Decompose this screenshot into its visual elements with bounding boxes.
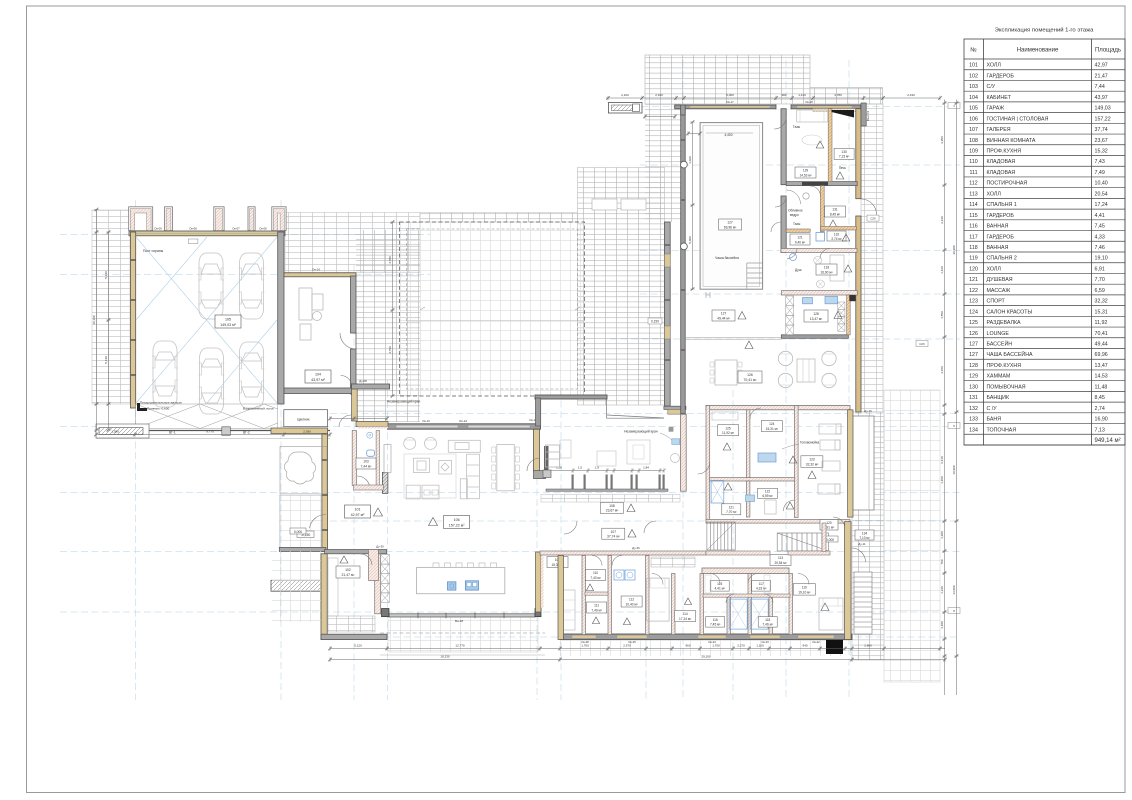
svg-text:3,480: 3,480 — [940, 621, 944, 629]
svg-text:6,91: 6,91 — [1095, 266, 1105, 272]
svg-text:124: 124 — [769, 422, 775, 426]
svg-text:7,45: 7,45 — [1095, 224, 1105, 230]
svg-text:Водоприемный лоток: Водоприемный лоток — [243, 407, 274, 411]
svg-text:126: 126 — [969, 331, 978, 337]
svg-text:108: 108 — [969, 138, 978, 144]
svg-text:106: 106 — [969, 116, 978, 122]
svg-text:7,45 м²: 7,45 м² — [710, 623, 720, 627]
svg-text:131: 131 — [969, 395, 978, 401]
svg-text:Предохранительные жалюзи: Предохранительные жалюзи — [140, 401, 182, 405]
svg-text:2,74 м²: 2,74 м² — [831, 237, 841, 241]
svg-text:С2б: С2б — [870, 217, 876, 221]
svg-text:5,120: 5,120 — [354, 644, 362, 648]
svg-text:118: 118 — [969, 245, 977, 251]
svg-text:8,45 м²: 8,45 м² — [830, 212, 840, 216]
svg-text:Пост охраны: Пост охраны — [143, 249, 164, 253]
svg-text:Ок-22: Ок-22 — [812, 640, 820, 644]
svg-text:Ок-18: Ок-18 — [805, 100, 813, 104]
svg-text:13,47 м²: 13,47 м² — [810, 317, 823, 321]
svg-text:114: 114 — [683, 612, 688, 616]
svg-text:10,900: 10,900 — [952, 465, 956, 475]
svg-text:4,400: 4,400 — [725, 133, 733, 137]
svg-text:125: 125 — [725, 426, 731, 430]
svg-text:112: 112 — [629, 598, 634, 602]
svg-text:14,53 м²: 14,53 м² — [799, 173, 811, 177]
svg-text:ГАЛЕРЕЯ: ГАЛЕРЕЯ — [987, 127, 1011, 133]
svg-text:1,020: 1,020 — [688, 156, 692, 164]
svg-text:ВАННАЯ: ВАННАЯ — [987, 224, 1009, 230]
svg-text:ПОСТИРОЧНАЯ: ПОСТИРОЧНАЯ — [987, 181, 1028, 187]
svg-text:2,430: 2,430 — [907, 93, 915, 97]
svg-text:1,410: 1,410 — [798, 93, 806, 97]
svg-text:LOUNGE: LOUNGE — [987, 331, 1010, 337]
svg-text:1,550: 1,550 — [940, 311, 944, 319]
svg-text:Ок-09: Ок-09 — [154, 227, 162, 231]
svg-text:17,24 м²: 17,24 м² — [679, 617, 691, 621]
svg-text:149,03 м²: 149,03 м² — [220, 323, 236, 327]
svg-text:119: 119 — [969, 256, 977, 262]
svg-text:Вент-01: Вент-01 — [866, 110, 870, 121]
svg-text:10,40 м²: 10,40 м² — [626, 602, 638, 606]
svg-text:116: 116 — [713, 618, 718, 622]
svg-text:37,74: 37,74 — [1095, 127, 1108, 133]
svg-text:42,97: 42,97 — [1095, 63, 1108, 69]
svg-text:1,9: 1,9 — [595, 466, 600, 470]
svg-text:23,67: 23,67 — [1095, 138, 1108, 144]
svg-text:126: 126 — [747, 373, 753, 377]
svg-text:106: 106 — [454, 518, 460, 522]
svg-text:20,54: 20,54 — [1095, 191, 1108, 197]
svg-text:КЛАДОВАЯ: КЛАДОВАЯ — [987, 170, 1016, 176]
svg-text:123: 123 — [969, 299, 978, 305]
svg-text:Незамерзающий кран: Незамерзающий кран — [624, 430, 658, 434]
svg-text:20,54 м²: 20,54 м² — [774, 561, 786, 565]
svg-text:134: 134 — [862, 531, 868, 535]
svg-text:1,450: 1,450 — [940, 476, 944, 484]
svg-text:49,44: 49,44 — [1095, 342, 1108, 348]
svg-text:382: 382 — [781, 93, 786, 97]
svg-text:9,40 м²: 9,40 м² — [795, 240, 805, 244]
svg-text:30,900: 30,900 — [952, 245, 956, 255]
svg-text:110: 110 — [593, 571, 598, 575]
svg-text:103: 103 — [969, 84, 978, 90]
svg-text:САЛОН КРАСОТЫ: САЛОН КРАСОТЫ — [987, 309, 1033, 315]
svg-text:111: 111 — [969, 170, 977, 176]
svg-text:127: 127 — [727, 221, 733, 225]
svg-text:2,100: 2,100 — [621, 93, 629, 97]
svg-text:69,96: 69,96 — [1095, 352, 1108, 358]
svg-text:132: 132 — [969, 406, 978, 412]
svg-text:17,24: 17,24 — [1095, 202, 1108, 208]
svg-text:ГОСТИНАЯ | СТОЛОВАЯ: ГОСТИНАЯ | СТОЛОВАЯ — [987, 116, 1049, 122]
svg-text:15,32: 15,32 — [1095, 149, 1108, 155]
svg-text:128: 128 — [813, 312, 819, 316]
svg-text:Тазы: Тазы — [793, 222, 801, 226]
svg-text:14,53: 14,53 — [1095, 374, 1108, 380]
svg-text:15,31 м²: 15,31 м² — [766, 427, 778, 431]
svg-text:РАЗДЕВАЛКА: РАЗДЕВАЛКА — [987, 320, 1022, 326]
svg-text:120: 120 — [969, 266, 978, 272]
svg-text:7,13: 7,13 — [1095, 427, 1105, 433]
svg-text:ГАРДЕРОБ: ГАРДЕРОБ — [987, 73, 1015, 79]
svg-text:1,100: 1,100 — [756, 644, 764, 648]
svg-text:5,000: 5,000 — [688, 236, 692, 244]
svg-text:КЛАДОВАЯ: КЛАДОВАЯ — [987, 159, 1016, 165]
svg-text:Тазы: Тазы — [793, 125, 801, 129]
svg-text:9,770: 9,770 — [206, 430, 214, 434]
svg-text:43,97: 43,97 — [1095, 95, 1108, 101]
svg-text:101: 101 — [355, 508, 361, 512]
svg-text:7,46 м²: 7,46 м² — [763, 623, 773, 627]
svg-text:2,860: 2,860 — [864, 644, 872, 648]
svg-text:120: 120 — [826, 521, 832, 525]
svg-text:7,70: 7,70 — [1095, 277, 1105, 283]
svg-text:4,41: 4,41 — [1095, 213, 1105, 219]
svg-text:32,32: 32,32 — [1095, 299, 1108, 305]
svg-text:130: 130 — [841, 150, 847, 154]
svg-text:127: 127 — [969, 352, 978, 358]
svg-text:940: 940 — [802, 644, 807, 648]
svg-text:7,43 м²: 7,43 м² — [590, 576, 600, 580]
svg-text:116: 116 — [969, 224, 977, 230]
svg-text:ХОЛЛ: ХОЛЛ — [987, 63, 1002, 69]
svg-text:1,700: 1,700 — [581, 644, 589, 648]
svg-text:СПАЛЬНЯ 1: СПАЛЬНЯ 1 — [987, 202, 1017, 208]
svg-text:Экспликация помещений 1-го эта: Экспликация помещений 1-го этажа — [995, 27, 1094, 34]
svg-text:ВГ-1: ВГ-1 — [169, 431, 176, 435]
svg-text:157,22: 157,22 — [1095, 116, 1111, 122]
svg-text:127: 127 — [721, 312, 727, 316]
svg-text:1,230: 1,230 — [940, 586, 944, 594]
svg-text:2,160: 2,160 — [655, 93, 663, 97]
svg-text:ГАРДЕРОБ: ГАРДЕРОБ — [987, 234, 1015, 240]
svg-text:127: 127 — [969, 342, 978, 348]
svg-text:Наименование: Наименование — [1017, 48, 1059, 54]
svg-text:6,59: 6,59 — [1095, 288, 1105, 294]
svg-text:125: 125 — [969, 320, 978, 326]
svg-text:МАССАЖ: МАССАЖ — [987, 288, 1011, 294]
svg-text:7,70 м²: 7,70 м² — [726, 510, 736, 514]
svg-text:2,430: 2,430 — [940, 216, 944, 224]
svg-text:8,45: 8,45 — [1095, 395, 1105, 401]
svg-text:Приямок -0,600: Приямок -0,600 — [147, 407, 169, 411]
svg-text:7,46: 7,46 — [1095, 245, 1105, 251]
svg-text:7,49 м²: 7,49 м² — [591, 608, 601, 612]
svg-text:4,33: 4,33 — [1095, 234, 1105, 240]
svg-text:949,14 м²: 949,14 м² — [1095, 438, 1121, 444]
svg-text:Ду-11: Ду-11 — [858, 542, 866, 546]
svg-text:119: 119 — [802, 585, 807, 589]
svg-text:111: 111 — [594, 604, 599, 608]
svg-text:1,84: 1,84 — [643, 466, 649, 470]
svg-text:С/У: С/У — [987, 84, 996, 90]
svg-text:121: 121 — [969, 277, 978, 283]
svg-text:СПОРТ: СПОРТ — [987, 299, 1006, 305]
svg-text:4,41 м²: 4,41 м² — [715, 587, 725, 591]
svg-text:110: 110 — [969, 159, 977, 165]
svg-text:7,49: 7,49 — [1095, 170, 1105, 176]
svg-text:ПРОФ.КУХНЯ: ПРОФ.КУХНЯ — [987, 149, 1022, 155]
svg-text:Ду-19: Ду-19 — [864, 409, 872, 413]
svg-text:23,67 м²: 23,67 м² — [606, 509, 619, 513]
svg-text:Ок-06: Ок-06 — [259, 227, 267, 231]
svg-text:43,97 м²: 43,97 м² — [311, 378, 325, 382]
svg-text:18,230: 18,230 — [440, 655, 450, 659]
svg-text:118: 118 — [765, 618, 770, 622]
svg-text:130: 130 — [969, 384, 978, 390]
svg-text:ХОЛЛ: ХОЛЛ — [987, 191, 1002, 197]
svg-text:16,90: 16,90 — [1095, 417, 1108, 423]
svg-text:ТОПОЧНАЯ: ТОПОЧНАЯ — [987, 427, 1017, 433]
svg-text:3,950: 3,950 — [940, 136, 944, 144]
svg-text:4,760: 4,760 — [388, 346, 392, 354]
svg-text:1,5: 1,5 — [578, 466, 583, 470]
svg-text:Незамерзающий кран: Незамерзающий кран — [387, 399, 421, 403]
svg-text:Цветник: Цветник — [297, 418, 310, 422]
svg-text:Обливное: Обливное — [788, 209, 803, 213]
svg-text:117: 117 — [969, 234, 977, 240]
svg-text:129: 129 — [803, 169, 809, 173]
svg-text:69,96 м²: 69,96 м² — [724, 225, 737, 229]
svg-text:103: 103 — [363, 460, 369, 464]
svg-text:19,10 м²: 19,10 м² — [798, 590, 810, 594]
svg-text:108: 108 — [609, 504, 615, 508]
svg-text:102: 102 — [969, 73, 978, 79]
svg-text:СПАЛЬНЯ 2: СПАЛЬНЯ 2 — [987, 256, 1017, 262]
svg-text:6,410: 6,410 — [940, 456, 944, 464]
svg-text:10,160: 10,160 — [92, 315, 96, 325]
svg-text:21,47 м²: 21,47 м² — [342, 573, 356, 577]
svg-text:129: 129 — [969, 374, 978, 380]
svg-text:107: 107 — [611, 530, 617, 534]
svg-text:КАБИНЕТ: КАБИНЕТ — [987, 95, 1012, 101]
svg-text:131: 131 — [832, 208, 838, 212]
svg-text:121: 121 — [729, 505, 735, 509]
svg-text:2,74: 2,74 — [1095, 406, 1105, 412]
svg-text:49,44 м²: 49,44 м² — [717, 316, 730, 320]
svg-text:Ок-28: Ок-28 — [581, 640, 589, 644]
svg-text:6,000: 6,000 — [726, 93, 734, 97]
svg-text:11,92: 11,92 — [1095, 320, 1108, 326]
svg-text:ДУШЕВАЯ: ДУШЕВАЯ — [987, 277, 1013, 283]
svg-text:42,97 м²: 42,97 м² — [351, 513, 365, 517]
svg-text:5,140: 5,140 — [104, 356, 108, 364]
svg-text:БАНЩИК: БАНЩИК — [987, 395, 1010, 401]
svg-text:ведро: ведро — [790, 213, 799, 217]
svg-text:133: 133 — [969, 417, 978, 423]
svg-text:2,570: 2,570 — [623, 644, 631, 648]
svg-text:БАССЕЙН: БАССЕЙН — [987, 340, 1013, 348]
svg-text:117: 117 — [759, 582, 764, 586]
svg-text:2,270: 2,270 — [737, 644, 745, 648]
svg-text:102: 102 — [345, 568, 351, 572]
svg-text:7,13 м²: 7,13 м² — [859, 536, 869, 540]
svg-text:№: № — [970, 47, 976, 54]
svg-text:112: 112 — [969, 181, 977, 187]
svg-text:11,92 м²: 11,92 м² — [722, 431, 734, 435]
svg-text:7,44 м²: 7,44 м² — [361, 465, 373, 469]
svg-text:Ок-17: Ок-17 — [726, 100, 734, 104]
svg-text:Ок-24: Ок-24 — [708, 640, 716, 644]
svg-text:Душ: Душ — [795, 268, 802, 272]
svg-text:ГАРАЖ: ГАРАЖ — [987, 106, 1005, 112]
svg-text:104: 104 — [315, 373, 321, 377]
svg-text:109: 109 — [969, 149, 978, 155]
svg-text:Ду-08: Ду-08 — [359, 379, 367, 383]
svg-text:105: 105 — [225, 318, 231, 322]
svg-text:Ок-23: Ок-23 — [761, 640, 769, 644]
svg-text:29,200: 29,200 — [701, 655, 711, 659]
svg-text:5,140: 5,140 — [104, 271, 108, 279]
svg-text:ЧАША БАССЕЙНА: ЧАША БАССЕЙНА — [987, 350, 1034, 358]
svg-text:БАНЯ: БАНЯ — [987, 417, 1002, 423]
svg-text:ВГ-2: ВГ-2 — [243, 431, 250, 435]
svg-text:124: 124 — [969, 309, 978, 315]
svg-text:Ок-08: Ок-08 — [189, 227, 197, 231]
svg-text:ВАННАЯ: ВАННАЯ — [987, 245, 1009, 251]
svg-text:37,74 м²: 37,74 м² — [607, 535, 620, 539]
svg-text:122: 122 — [765, 490, 771, 494]
svg-text:13,500: 13,500 — [952, 585, 956, 595]
svg-text:7,44: 7,44 — [1095, 84, 1105, 90]
svg-text:7,43: 7,43 — [1095, 159, 1105, 165]
svg-text:ХОЛЛ: ХОЛЛ — [987, 266, 1002, 272]
svg-text:121: 121 — [797, 236, 803, 240]
svg-text:Ду-30: Ду-30 — [376, 545, 384, 549]
svg-text:123: 123 — [809, 458, 815, 462]
svg-text:Ду-26: Ду-26 — [632, 546, 640, 550]
svg-text:1,200: 1,200 — [940, 531, 944, 539]
svg-text:700: 700 — [940, 559, 944, 564]
svg-text:ПРОФ.КУХНЯ: ПРОФ.КУХНЯ — [987, 363, 1022, 369]
svg-text:960: 960 — [685, 644, 690, 648]
svg-text:Вн-28: Вн-28 — [455, 619, 463, 623]
svg-text:1,380: 1,380 — [111, 430, 119, 434]
svg-text:1,700: 1,700 — [712, 644, 720, 648]
svg-text:128: 128 — [969, 363, 978, 369]
svg-text:70,41: 70,41 — [1095, 331, 1108, 337]
svg-text:122: 122 — [969, 288, 978, 294]
svg-text:107: 107 — [969, 127, 978, 133]
svg-text:Чаша бассейна: Чаша бассейна — [715, 256, 739, 260]
svg-text:105: 105 — [969, 106, 978, 112]
svg-text:7,23 м²: 7,23 м² — [839, 155, 849, 159]
svg-text:113: 113 — [778, 556, 783, 560]
svg-text:114: 114 — [969, 202, 977, 208]
svg-text:ВИННАЯ КОМНАТА: ВИННАЯ КОМНАТА — [987, 138, 1036, 144]
svg-text:13,47: 13,47 — [1095, 363, 1108, 369]
svg-text:15,31: 15,31 — [1095, 309, 1108, 315]
svg-text:134: 134 — [969, 427, 978, 433]
svg-text:ГАРДЕРОБ: ГАРДЕРОБ — [987, 213, 1015, 219]
svg-text:Ок-25: Ок-25 — [628, 640, 636, 644]
svg-text:ХАММАМ: ХАММАМ — [987, 374, 1011, 380]
svg-text:4,150: 4,150 — [940, 366, 944, 374]
svg-text:Ок-12: Ок-12 — [459, 419, 467, 423]
svg-text:С /У: С /У — [987, 406, 998, 412]
svg-text:Печь: Печь — [839, 166, 847, 170]
svg-text:3,780: 3,780 — [834, 93, 842, 97]
svg-text:Площадь: Площадь — [1095, 48, 1121, 54]
svg-text:19,10: 19,10 — [1095, 256, 1108, 262]
svg-text:12,770: 12,770 — [455, 644, 465, 648]
svg-text:0,150: 0,150 — [651, 320, 659, 324]
svg-text:149,03: 149,03 — [1095, 106, 1111, 112]
svg-text:11,48: 11,48 — [1095, 384, 1108, 390]
svg-text:0,000: 0,000 — [294, 530, 302, 534]
svg-text:104: 104 — [969, 95, 978, 101]
svg-text:32,32 м²: 32,32 м² — [806, 463, 819, 467]
svg-text:1,420: 1,420 — [940, 266, 944, 274]
svg-text:С2б: С2б — [919, 342, 925, 346]
svg-text:2,390: 2,390 — [303, 430, 311, 434]
svg-text:Головомойка: Головомойка — [800, 441, 820, 445]
svg-text:4,33 м²: 4,33 м² — [756, 587, 766, 591]
svg-text:Ок-10: Ок-10 — [312, 268, 320, 272]
svg-text:6,59 м²: 6,59 м² — [762, 494, 772, 498]
svg-text:132: 132 — [834, 232, 840, 236]
svg-text:21,47: 21,47 — [1095, 73, 1108, 79]
svg-text:101: 101 — [969, 63, 978, 69]
svg-text:Ок-07: Ок-07 — [232, 227, 240, 231]
svg-text:ПОМЫВОЧНАЯ: ПОМЫВОЧНАЯ — [987, 384, 1026, 390]
svg-text:113: 113 — [969, 191, 977, 197]
svg-text:70,41 м²: 70,41 м² — [744, 378, 758, 382]
svg-text:4,780: 4,780 — [388, 256, 392, 264]
svg-text:0,000: 0,000 — [826, 538, 834, 542]
svg-text:157,22 м²: 157,22 м² — [449, 524, 465, 528]
svg-text:16,90 м²: 16,90 м² — [820, 270, 832, 274]
svg-text:Ок-13: Ок-13 — [422, 419, 430, 423]
svg-text:133: 133 — [824, 266, 830, 270]
svg-text:115: 115 — [969, 213, 977, 219]
svg-text:10,40: 10,40 — [1095, 181, 1108, 187]
